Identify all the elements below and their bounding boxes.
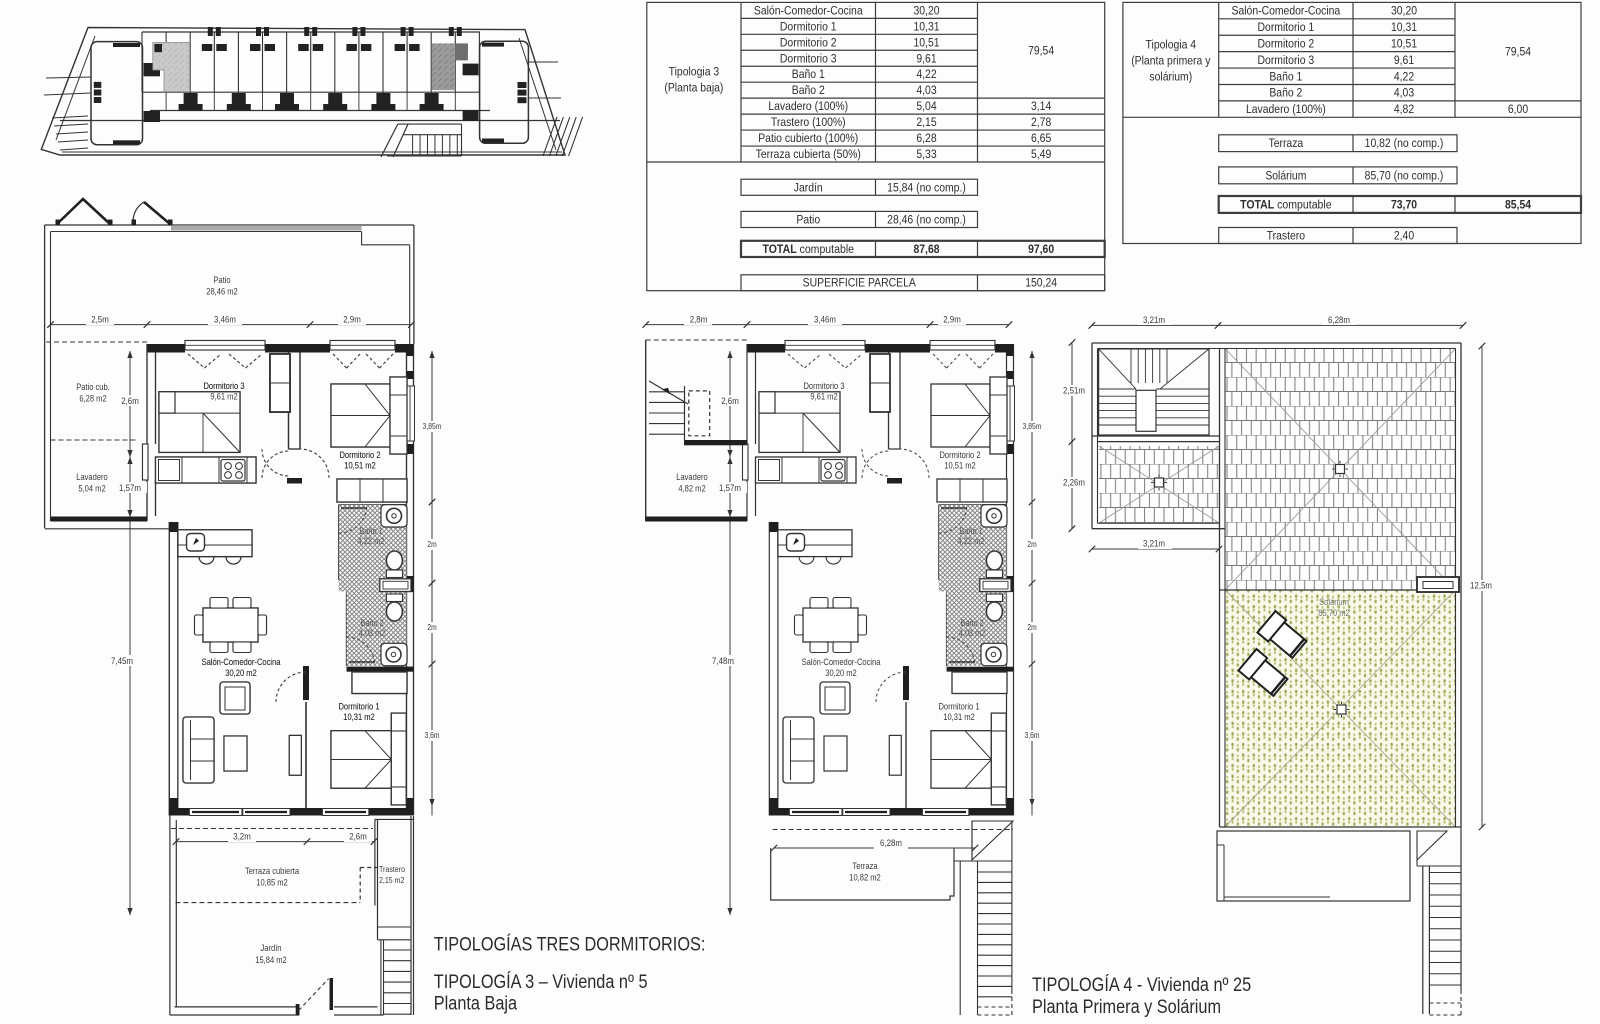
svg-text:SUPERFICIE PARCELA: SUPERFICIE PARCELA <box>803 277 916 290</box>
svg-text:2,78: 2,78 <box>1031 116 1051 129</box>
svg-text:Planta Primera y Solárium: Planta Primera y Solárium <box>1032 996 1221 1018</box>
svg-text:Jardín: Jardín <box>794 182 823 195</box>
svg-text:2,5m: 2,5m <box>91 314 109 325</box>
svg-text:6,00: 6,00 <box>1508 103 1528 116</box>
svg-text:Baño 2: Baño 2 <box>1269 87 1302 100</box>
svg-text:5,04: 5,04 <box>916 100 937 113</box>
svg-text:9,61: 9,61 <box>916 53 936 66</box>
svg-text:6,65: 6,65 <box>1031 132 1051 145</box>
svg-text:TOTAL computable: TOTAL computable <box>762 243 854 256</box>
svg-text:2,9m: 2,9m <box>343 314 361 325</box>
svg-text:Tipologia 4: Tipologia 4 <box>1146 39 1197 52</box>
svg-text:150,24: 150,24 <box>1025 277 1057 290</box>
svg-text:15,84 (no comp.): 15,84 (no comp.) <box>887 182 966 195</box>
svg-text:Dormitorio 2: Dormitorio 2 <box>1258 38 1315 51</box>
svg-text:(Planta primera y: (Planta primera y <box>1131 55 1210 68</box>
svg-text:Solárium: Solárium <box>1265 170 1306 183</box>
svg-text:Lavadero: Lavadero <box>76 471 108 482</box>
svg-text:6,28 m2: 6,28 m2 <box>79 393 107 404</box>
svg-text:12,5m: 12,5m <box>1470 580 1492 591</box>
svg-text:Dormitorio 3: Dormitorio 3 <box>780 53 837 66</box>
svg-text:2,40: 2,40 <box>1394 230 1414 243</box>
svg-text:Trastero: Trastero <box>379 864 405 874</box>
svg-text:TOTAL computable: TOTAL computable <box>1240 199 1332 212</box>
svg-text:2,6m: 2,6m <box>349 831 367 842</box>
svg-text:85,54: 85,54 <box>1505 199 1532 212</box>
svg-text:Trastero: Trastero <box>1267 230 1305 243</box>
svg-text:87,68: 87,68 <box>913 243 940 256</box>
svg-text:Baño 2: Baño 2 <box>792 84 825 97</box>
svg-text:2,26m: 2,26m <box>1063 477 1085 488</box>
svg-text:10,51: 10,51 <box>1391 38 1417 51</box>
svg-text:Terraza: Terraza <box>852 860 878 871</box>
svg-text:4,82 m2: 4,82 m2 <box>678 483 706 494</box>
svg-text:Terraza cubierta: Terraza cubierta <box>245 865 299 876</box>
svg-text:30,20: 30,20 <box>1391 5 1417 18</box>
svg-text:6,28m: 6,28m <box>1328 314 1350 325</box>
svg-text:3,46m: 3,46m <box>814 314 836 325</box>
svg-text:3,2m: 3,2m <box>233 831 251 842</box>
svg-text:Patio: Patio <box>796 214 820 227</box>
svg-text:Terraza cubierta (50%): Terraza cubierta (50%) <box>756 148 861 161</box>
svg-text:28,46 (no comp.): 28,46 (no comp.) <box>887 214 966 227</box>
svg-text:Patio cub.: Patio cub. <box>76 381 110 392</box>
svg-text:4,03: 4,03 <box>916 84 936 97</box>
svg-text:Dormitorio 1: Dormitorio 1 <box>1258 21 1315 34</box>
svg-text:Terraza: Terraza <box>1269 137 1304 150</box>
svg-text:10,31: 10,31 <box>1391 21 1417 34</box>
svg-text:97,60: 97,60 <box>1028 243 1054 256</box>
svg-text:Baño 1: Baño 1 <box>1269 71 1302 84</box>
svg-text:4,03: 4,03 <box>1394 87 1414 100</box>
svg-text:5,04 m2: 5,04 m2 <box>78 483 106 494</box>
svg-text:3,21m: 3,21m <box>1143 538 1165 549</box>
svg-text:Planta Baja: Planta Baja <box>434 992 517 1014</box>
svg-text:2,9m: 2,9m <box>943 314 961 325</box>
svg-text:79,54: 79,54 <box>1028 45 1055 58</box>
svg-text:10,82 (no comp.): 10,82 (no comp.) <box>1365 137 1444 150</box>
svg-text:6,28: 6,28 <box>916 132 936 145</box>
svg-text:5,49: 5,49 <box>1031 148 1051 161</box>
svg-text:TIPOLOGÍAS TRES DORMITORIOS:: TIPOLOGÍAS TRES DORMITORIOS: <box>434 933 706 955</box>
svg-text:Patio: Patio <box>213 274 231 285</box>
svg-text:28,46 m2: 28,46 m2 <box>206 286 238 297</box>
svg-text:2,8m: 2,8m <box>690 314 708 325</box>
svg-text:Baño 1: Baño 1 <box>792 68 825 81</box>
svg-text:3,21m: 3,21m <box>1143 314 1165 325</box>
svg-text:Salón-Comedor-Cocina: Salón-Comedor-Cocina <box>754 5 863 18</box>
svg-text:2,15: 2,15 <box>916 116 936 129</box>
svg-text:10,85 m2: 10,85 m2 <box>256 877 288 888</box>
svg-text:6,28m: 6,28m <box>880 837 902 848</box>
svg-text:2,15 m2: 2,15 m2 <box>379 875 404 885</box>
svg-text:10,51: 10,51 <box>913 37 939 50</box>
svg-text:Dormitorio 1: Dormitorio 1 <box>780 21 837 34</box>
svg-text:Jardín: Jardín <box>261 942 282 953</box>
svg-text:Tipologia 3: Tipologia 3 <box>669 66 720 79</box>
svg-text:Patio cubierto (100%): Patio cubierto (100%) <box>758 132 858 145</box>
svg-text:4,22: 4,22 <box>916 68 936 81</box>
svg-text:Lavadero (100%): Lavadero (100%) <box>768 100 848 113</box>
svg-text:85,70 m2: 85,70 m2 <box>1318 607 1350 618</box>
svg-text:Lavadero (100%): Lavadero (100%) <box>1246 103 1326 116</box>
svg-text:10,82 m2: 10,82 m2 <box>849 872 881 883</box>
svg-text:9,61: 9,61 <box>1394 54 1414 67</box>
svg-text:7,45m: 7,45m <box>111 655 133 666</box>
svg-text:85,70 (no comp.): 85,70 (no comp.) <box>1365 170 1444 183</box>
svg-text:7,48m: 7,48m <box>712 655 734 666</box>
svg-text:TIPOLOGÍA 4 - Vivienda nº 25: TIPOLOGÍA 4 - Vivienda nº 25 <box>1032 974 1251 996</box>
svg-text:15,84 m2: 15,84 m2 <box>255 954 287 965</box>
svg-text:Dormitorio 3: Dormitorio 3 <box>1258 54 1315 67</box>
svg-text:3,46m: 3,46m <box>214 314 236 325</box>
svg-text:79,54: 79,54 <box>1505 46 1532 59</box>
svg-text:TIPOLOGÍA 3 – Vivienda nº 5: TIPOLOGÍA 3 – Vivienda nº 5 <box>434 971 648 993</box>
svg-text:solárium): solárium) <box>1149 71 1192 84</box>
svg-text:73,70: 73,70 <box>1391 199 1417 212</box>
svg-text:Salón-Comedor-Cocina: Salón-Comedor-Cocina <box>1231 5 1340 18</box>
svg-text:4,82: 4,82 <box>1394 103 1414 116</box>
svg-text:3,14: 3,14 <box>1031 100 1052 113</box>
svg-text:2,51m: 2,51m <box>1063 385 1085 396</box>
svg-text:Solárium: Solárium <box>1319 596 1349 607</box>
svg-text:5,33: 5,33 <box>916 148 936 161</box>
svg-text:Trastero (100%): Trastero (100%) <box>771 116 846 129</box>
svg-text:4,22: 4,22 <box>1394 71 1414 84</box>
svg-text:10,31: 10,31 <box>913 21 939 34</box>
svg-text:Dormitorio 2: Dormitorio 2 <box>780 37 837 50</box>
svg-text:(Planta baja): (Planta baja) <box>664 82 723 95</box>
svg-text:Lavadero: Lavadero <box>676 471 708 482</box>
svg-text:30,20: 30,20 <box>913 5 939 18</box>
